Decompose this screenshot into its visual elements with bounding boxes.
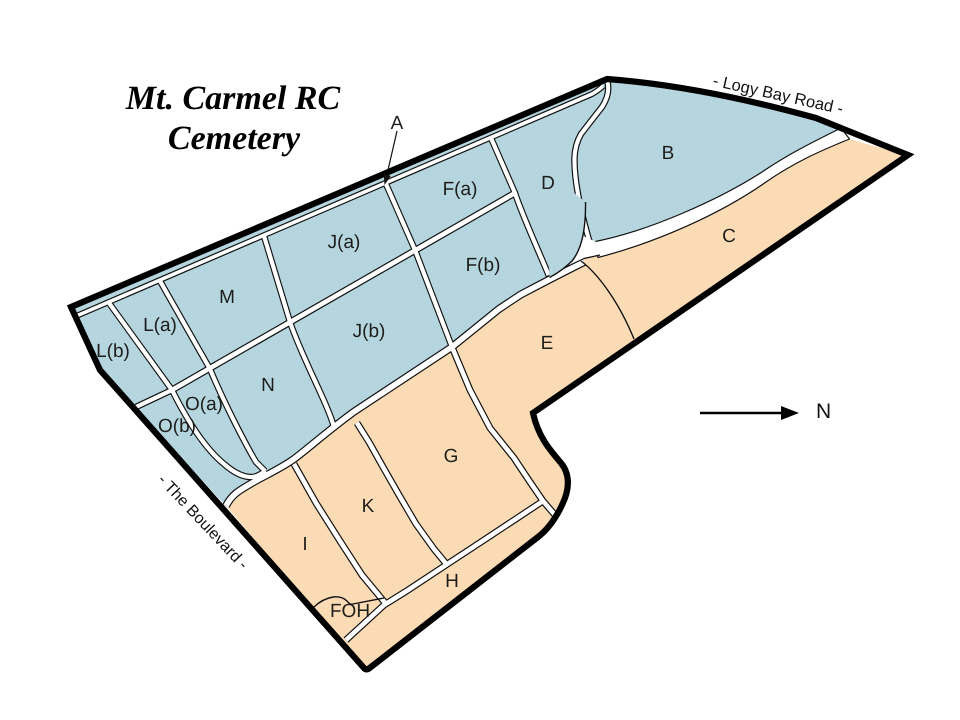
svg-text:J(b): J(b) [353, 321, 386, 342]
svg-text:FOH: FOH [330, 601, 370, 622]
svg-text:B: B [662, 143, 675, 164]
svg-text:Cemetery: Cemetery [168, 120, 301, 157]
svg-text:M: M [219, 287, 235, 308]
svg-text:C: C [722, 226, 736, 247]
svg-text:J(a): J(a) [328, 232, 361, 253]
svg-text:D: D [541, 173, 555, 194]
svg-text:I: I [302, 534, 307, 555]
svg-text:L(b): L(b) [96, 341, 130, 362]
svg-text:F(b): F(b) [466, 255, 501, 276]
svg-text:N: N [816, 400, 831, 423]
svg-text:Mt. Carmel RC: Mt. Carmel RC [125, 80, 341, 117]
svg-text:O(a): O(a) [185, 394, 223, 415]
svg-text:O(b): O(b) [158, 416, 196, 437]
svg-text:L(a): L(a) [143, 315, 177, 336]
svg-text:A: A [391, 113, 404, 134]
svg-text:G: G [444, 446, 459, 467]
svg-text:E: E [541, 333, 554, 354]
svg-text:F(a): F(a) [443, 179, 478, 200]
svg-text:N: N [261, 375, 275, 396]
svg-text:K: K [362, 496, 375, 517]
svg-text:H: H [445, 571, 459, 592]
